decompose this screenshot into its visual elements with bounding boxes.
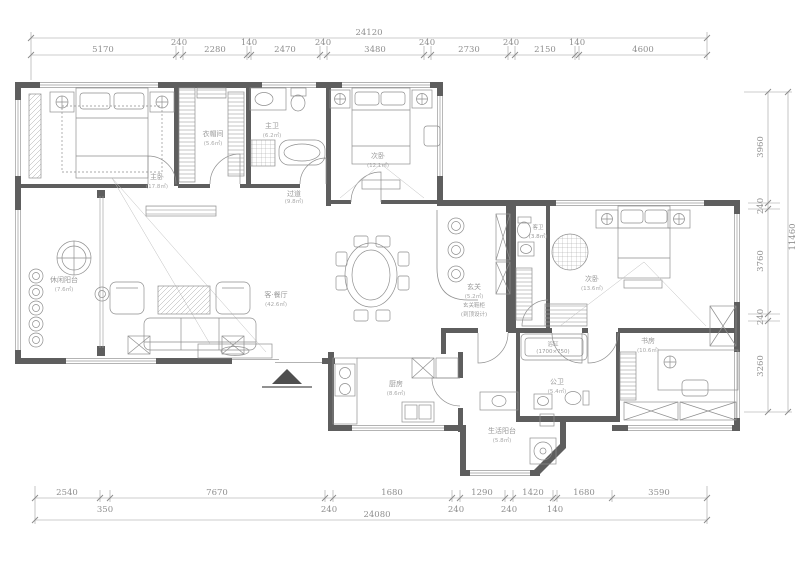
top-dim-seg-5: 240 [315, 38, 331, 48]
tv-console [146, 206, 216, 216]
bottom-dim-seg-8: 1420 [522, 488, 544, 498]
sofa [144, 318, 256, 350]
walls [15, 82, 740, 476]
bedroom2-furniture [330, 88, 440, 198]
room-labels: 主卧 (17.8㎡) 衣帽间 (5.6㎡) 主卫 (6.2㎡) 次卧 (12.1… [50, 121, 659, 444]
bottom-dim-seg-7: 240 [501, 505, 517, 515]
label-entry: 玄关 [467, 282, 481, 291]
living-room-furniture [95, 206, 256, 354]
area-study: (10.6㎡) [637, 346, 659, 354]
area-public-bath: (5.4㎡) [548, 387, 567, 395]
bottom-dim-seg-2: 7670 [206, 488, 228, 498]
dining-table [345, 243, 397, 307]
bottom-dim-seg-4: 1680 [381, 488, 403, 498]
top-dim-seg-1: 240 [171, 38, 187, 48]
top-dim-seg-8: 2730 [458, 45, 480, 55]
area-living-dining: (42.6㎡) [265, 300, 287, 308]
floor-plan-page: 24120 5170 240 2280 140 2470 240 3480 24… [0, 0, 800, 562]
top-dim-seg-2: 2280 [204, 45, 226, 55]
label-master-bedroom: 主卧 [150, 172, 164, 181]
right-dim-seg-1: 240 [756, 198, 766, 214]
sliding-door [232, 358, 322, 364]
area-bedroom3: (13.6㎡) [581, 284, 603, 292]
top-dim-total: 24120 [355, 28, 382, 38]
bottom-dim-seg-11: 3590 [648, 488, 670, 498]
area-cloakroom: (5.6㎡) [204, 139, 223, 147]
top-dim-seg-4: 2470 [274, 45, 296, 55]
door-public-bath [552, 333, 582, 363]
floor-plan-drawing: 24120 5170 240 2280 140 2470 240 3480 24… [0, 0, 800, 562]
windows [15, 82, 740, 476]
top-dim-seg-3: 140 [241, 38, 257, 48]
label-public-bath: 公卫 [550, 378, 564, 386]
label-study: 书房 [641, 336, 655, 345]
top-dim-seg-11: 140 [569, 38, 585, 48]
label-hallway: 过道 [287, 189, 301, 198]
top-dim-seg-0: 5170 [92, 45, 114, 55]
top-dim-seg-7: 240 [419, 38, 435, 48]
round-rug [552, 234, 588, 270]
area-master-bedroom: (17.8㎡) [146, 182, 168, 190]
area-guest-bath: (3.8㎡) [529, 232, 548, 240]
stove [335, 364, 355, 396]
label-bedroom2: 次卧 [371, 151, 385, 160]
label-bedroom3: 次卧 [585, 274, 599, 283]
note-entry: 玄关鞋柜 [463, 301, 486, 309]
area-kitchen: (8.6㎡) [387, 389, 406, 397]
right-dim-seg-2: 3760 [756, 250, 766, 272]
leisure-balcony-furniture [29, 241, 91, 347]
bottom-dim-seg-1: 350 [97, 505, 113, 515]
bottom-dim-seg-9: 140 [547, 505, 563, 515]
top-dim-seg-12: 4600 [632, 45, 654, 55]
master-bath-fixtures [250, 88, 325, 166]
study-furniture [620, 350, 738, 420]
label-bathtub: 浴缸 [547, 340, 559, 348]
shower [251, 140, 275, 166]
label-cloakroom: 衣帽间 [203, 129, 224, 138]
right-dim-seg-4: 3260 [756, 355, 766, 377]
area-master-bath: (6.2㎡) [263, 131, 282, 139]
bottom-dim-seg-0: 2540 [56, 488, 78, 498]
right-dim-total: 11460 [788, 223, 798, 250]
bottom-dim-seg-3: 240 [321, 505, 337, 515]
area-leisure-balcony: (7.6㎡) [55, 285, 74, 293]
label-service-balcony: 生活阳台 [488, 426, 516, 435]
bottom-dim-seg-5: 240 [448, 505, 464, 515]
label-living-dining: 客·餐厅 [264, 290, 287, 299]
top-dim-seg-9: 240 [503, 38, 519, 48]
label-guest-bath: 客卫 [532, 223, 544, 231]
door-corridor [478, 333, 508, 363]
top-dim-seg-6: 3480 [364, 45, 386, 55]
furniture [29, 88, 738, 464]
label-kitchen: 厨房 [389, 379, 403, 388]
glass-partition [100, 196, 103, 348]
bedroom3-furniture [545, 206, 736, 346]
bottom-dim-seg-6: 1290 [471, 488, 493, 498]
area-entry: (5.2㎡) [465, 292, 484, 300]
right-dim-seg-0: 3960 [756, 136, 766, 158]
area-bathtub: (1700×750) [536, 349, 569, 355]
label-leisure-balcony: 休闲阳台 [50, 275, 78, 284]
label-master-bath: 主卫 [265, 121, 279, 130]
entrance-arrow [262, 369, 312, 387]
guest-bath-fixtures [516, 217, 534, 320]
bottom-dim-seg-10: 1680 [573, 488, 595, 498]
note2-entry: (到顶设计) [461, 310, 487, 318]
dining-set [336, 236, 409, 321]
bed-master [76, 88, 148, 178]
door-study [588, 333, 618, 363]
top-dim-seg-10: 2150 [534, 45, 556, 55]
area-bedroom2: (12.1㎡) [367, 161, 389, 169]
door-kitchen [432, 378, 460, 406]
bottom-dim-total: 24080 [363, 510, 390, 520]
area-service-balcony: (5.8㎡) [493, 436, 512, 444]
area-hallway: (9.8㎡) [285, 197, 304, 205]
coffee-table [158, 286, 210, 314]
bed-bedroom3 [618, 206, 670, 278]
right-dim-seg-3: 240 [756, 309, 766, 325]
